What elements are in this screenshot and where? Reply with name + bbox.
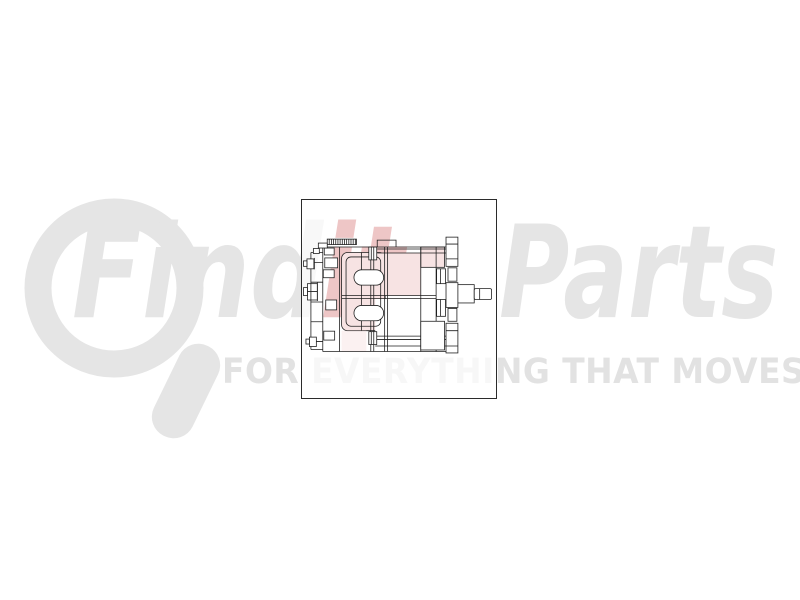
alternator-drawing	[302, 200, 496, 398]
product-image-frame	[301, 199, 497, 399]
product-page: Find it Parts FOR EVERYTHING THAT MOVES	[0, 0, 800, 600]
magnifier-logo-icon	[10, 185, 265, 450]
watermark-brand-suffix: Parts	[499, 210, 778, 338]
